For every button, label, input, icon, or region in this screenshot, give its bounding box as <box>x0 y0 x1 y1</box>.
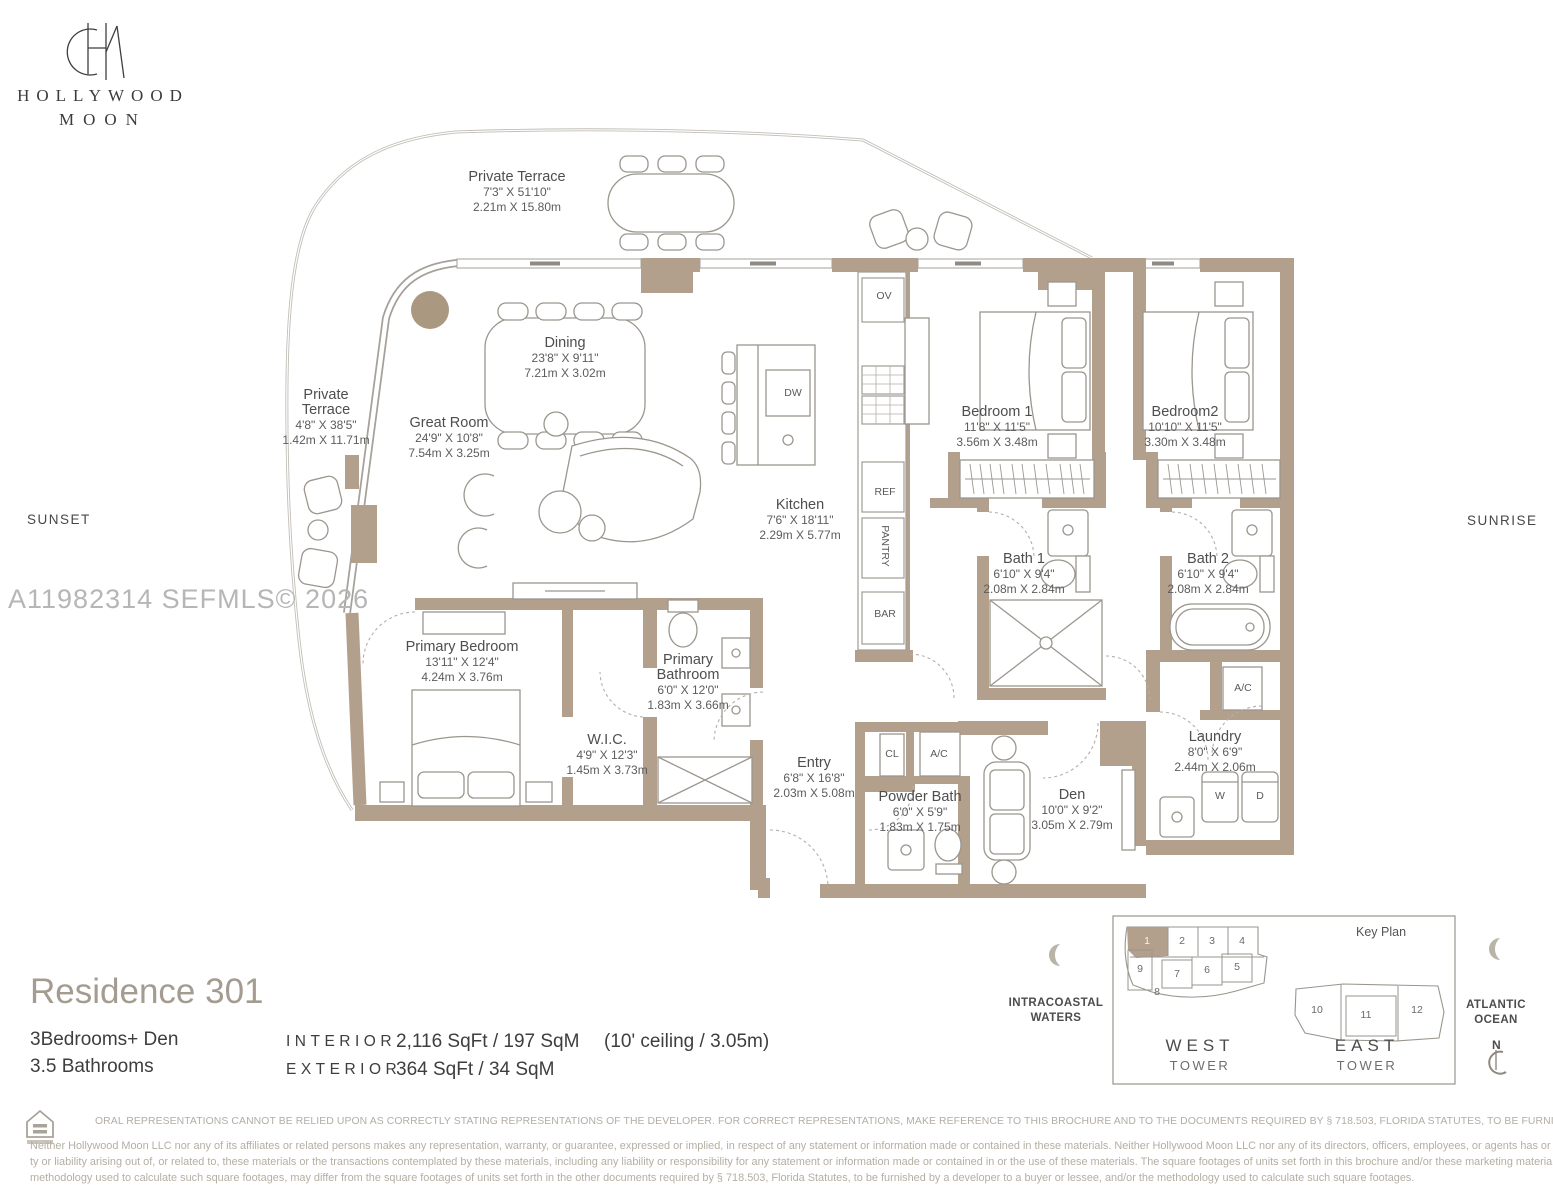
ac-label-1: A/C <box>930 748 948 760</box>
key-plan-diagram <box>1113 916 1455 1084</box>
key-plan-unit-5: 5 <box>1234 961 1240 973</box>
interior-value: 2,116 SqFt / 197 SqM <box>396 1031 579 1053</box>
room-label-primary-bedroom: Primary Bedroom 13'11" X 12'4" 4.24m X 3… <box>406 640 519 685</box>
bathrooms-text: 3.5 Bathrooms <box>30 1056 154 1078</box>
key-plan-unit-6: 6 <box>1204 964 1210 976</box>
closet-hatch-2 <box>1158 460 1280 498</box>
closet-label: CL <box>885 748 898 760</box>
room-label-bath-2: Bath 2 6'10" X 9'4" 2.08m X 2.84m <box>1167 552 1248 597</box>
floorplan-brochure-page: HOLLYWOOD MOON Private Terrace 7'3" X 51… <box>0 0 1553 1200</box>
room-label-wic: W.I.C. 4'9" X 12'3" 1.45m X 3.73m <box>566 733 647 778</box>
interior-label: INTERIOR <box>286 1033 396 1051</box>
footer-disclaimer-caps: ORAL REPRESENTATIONS CANNOT BE RELIED UP… <box>95 1116 1545 1127</box>
footer-disclaimer-line1: Neither Hollywood Moon LLC nor any of it… <box>30 1140 1530 1152</box>
footer-disclaimer-line3: methodology used to calculate such squar… <box>30 1172 1530 1184</box>
brand-name-line1: HOLLYWOOD <box>14 86 192 106</box>
room-label-kitchen: Kitchen 7'6" X 18'11" 2.29m X 5.77m <box>759 498 840 543</box>
key-plan-unit-8: 8 <box>1154 986 1160 998</box>
moon-icon-right <box>1489 938 1500 960</box>
closet-hatch-1 <box>960 460 1094 498</box>
west-tower-label: WEST TOWER <box>1165 1036 1234 1073</box>
exterior-label: EXTERIOR <box>286 1061 401 1079</box>
page-title: Residence 301 <box>30 972 264 1012</box>
east-tower-label: EAST TOWER <box>1335 1036 1399 1073</box>
room-label-den: Den 10'0" X 9'2" 3.05m X 2.79m <box>1031 788 1112 833</box>
key-plan-unit-1: 1 <box>1144 935 1150 947</box>
room-label-laundry: Laundry 8'0" X 6'9" 2.44m X 2.06m <box>1174 730 1255 775</box>
north-label: N <box>1492 1038 1501 1052</box>
room-label-bedroom-2: Bedroom2 10'10" X 11'5" 3.30m X 3.48m <box>1144 405 1225 450</box>
room-label-private-terrace-left: Private Terrace 4'8" X 38'5" 1.42m X 11.… <box>278 388 374 448</box>
key-plan-unit-9: 9 <box>1137 963 1143 975</box>
oven-label: OV <box>876 290 891 302</box>
key-plan-unit-2: 2 <box>1179 935 1185 947</box>
key-plan-unit-11: 11 <box>1361 1009 1372 1021</box>
key-plan-unit-4: 4 <box>1239 935 1245 947</box>
bar-label: BAR <box>874 608 896 620</box>
key-plan-unit-3: 3 <box>1209 935 1215 947</box>
north-compass-icon <box>1489 1050 1506 1074</box>
footer-disclaimer-line2: ty or liability arising out of, or relat… <box>30 1156 1530 1168</box>
key-plan-unit-7: 7 <box>1174 968 1180 980</box>
moon-icon-left <box>1049 944 1060 966</box>
kitchen-appliances <box>858 272 906 650</box>
atlantic-ocean-label: ATLANTIC OCEAN <box>1466 998 1526 1028</box>
room-label-great-room: Great Room 24'9" X 10'8" 7.54m X 3.25m <box>408 416 489 461</box>
key-plan-unit-12: 12 <box>1411 1004 1423 1016</box>
mls-watermark: A11982314 SEFMLS© 2026 <box>8 584 369 615</box>
ceiling-height-text: (10' ceiling / 3.05m) <box>604 1031 769 1053</box>
ac-label-2: A/C <box>1234 682 1252 694</box>
dryer-label: D <box>1256 790 1264 802</box>
room-label-dining: Dining 23'8" X 9'11" 7.21m X 3.02m <box>524 336 605 381</box>
dishwasher-label: DW <box>784 387 802 399</box>
brand-monogram <box>67 23 124 80</box>
refrigerator-label: REF <box>875 486 896 498</box>
room-label-primary-bathroom: Primary Bathroom 6'0" X 12'0" 1.83m X 3.… <box>638 653 738 713</box>
room-label-bath-1: Bath 1 6'10" X 9'4" 2.08m X 2.84m <box>983 552 1064 597</box>
exterior-value: 364 SqFt / 34 SqM <box>396 1059 554 1081</box>
key-plan-unit-10: 10 <box>1311 1004 1323 1016</box>
room-label-private-terrace-top: Private Terrace 7'3" X 51'10" 2.21m X 15… <box>468 170 565 215</box>
room-label-bedroom-1: Bedroom 1 11'8" X 11'5" 3.56m X 3.48m <box>956 405 1037 450</box>
sunrise-label: SUNRISE <box>1467 513 1538 528</box>
washer-label: W <box>1215 790 1225 802</box>
intracoastal-waters-label: INTRACOASTAL WATERS <box>1009 996 1104 1026</box>
room-label-entry: Entry 6'8" X 16'8" 2.03m X 5.08m <box>773 756 854 801</box>
pantry-label: PANTRY <box>879 525 891 567</box>
brand-name-line2: MOON <box>14 110 192 130</box>
bedrooms-text: 3Bedrooms+ Den <box>30 1029 178 1051</box>
sunset-label: SUNSET <box>27 512 91 527</box>
room-label-powder-bath: Powder Bath 6'0" X 5'9" 1.83m X 1.75m <box>878 790 961 835</box>
key-plan-title: Key Plan <box>1356 925 1406 939</box>
